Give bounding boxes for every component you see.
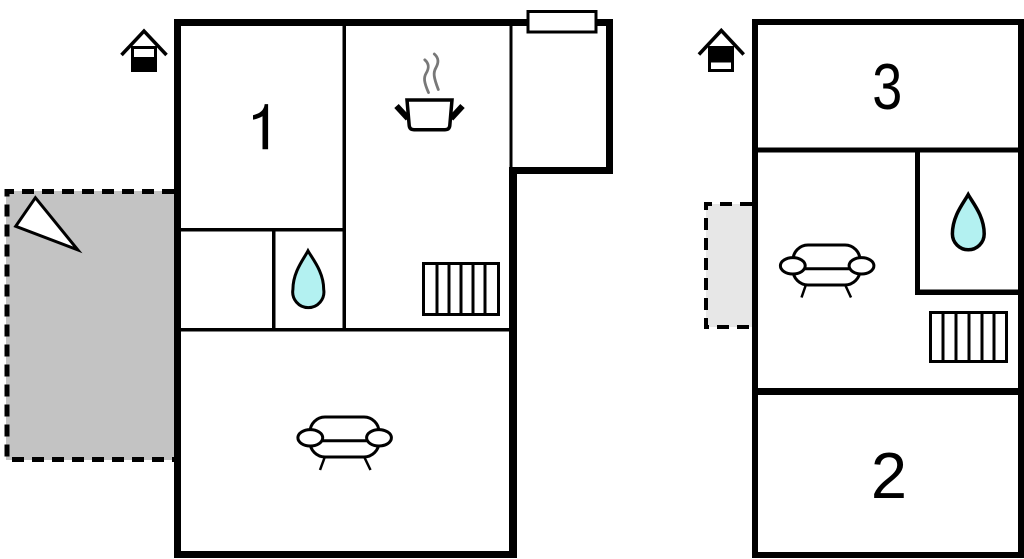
svg-text:3: 3 xyxy=(872,50,902,123)
svg-text:2: 2 xyxy=(871,439,907,512)
